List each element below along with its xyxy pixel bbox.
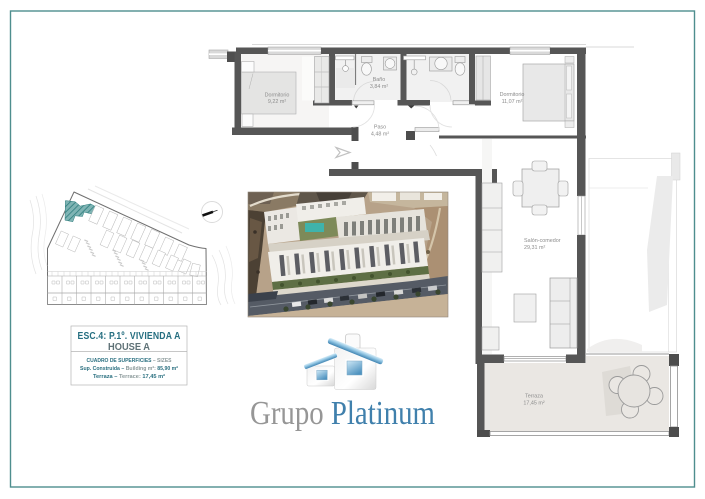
svg-text:CUADRO DE SUPERFICIES – SIZES: CUADRO DE SUPERFICIES – SIZES xyxy=(87,358,172,364)
svg-text:17,45 m²: 17,45 m² xyxy=(523,401,544,407)
svg-text:9,22 m²: 9,22 m² xyxy=(268,99,286,105)
svg-text:Dormitorio: Dormitorio xyxy=(265,93,290,99)
svg-text:Salón-comedor: Salón-comedor xyxy=(524,238,561,244)
svg-text:3,84 m²: 3,84 m² xyxy=(370,84,388,90)
svg-text:Paso: Paso xyxy=(374,125,386,131)
svg-text:Grupo Platinum: Grupo Platinum xyxy=(250,395,435,432)
svg-text:Terraza: Terraza xyxy=(525,394,543,400)
svg-text:Baño: Baño xyxy=(373,77,386,83)
svg-text:HOUSE A: HOUSE A xyxy=(108,341,150,353)
svg-text:29,31 m²: 29,31 m² xyxy=(524,245,545,251)
svg-text:11,07 m²: 11,07 m² xyxy=(502,99,523,105)
svg-text:Dormitorio: Dormitorio xyxy=(500,92,525,98)
svg-text:Terraza – Terrace: 17,45 m²: Terraza – Terrace: 17,45 m² xyxy=(93,373,165,380)
svg-text:4,48 m²: 4,48 m² xyxy=(371,132,389,138)
svg-text:Sup. Construida – Building m²:: Sup. Construida – Building m²: 85,90 m² xyxy=(80,365,178,372)
